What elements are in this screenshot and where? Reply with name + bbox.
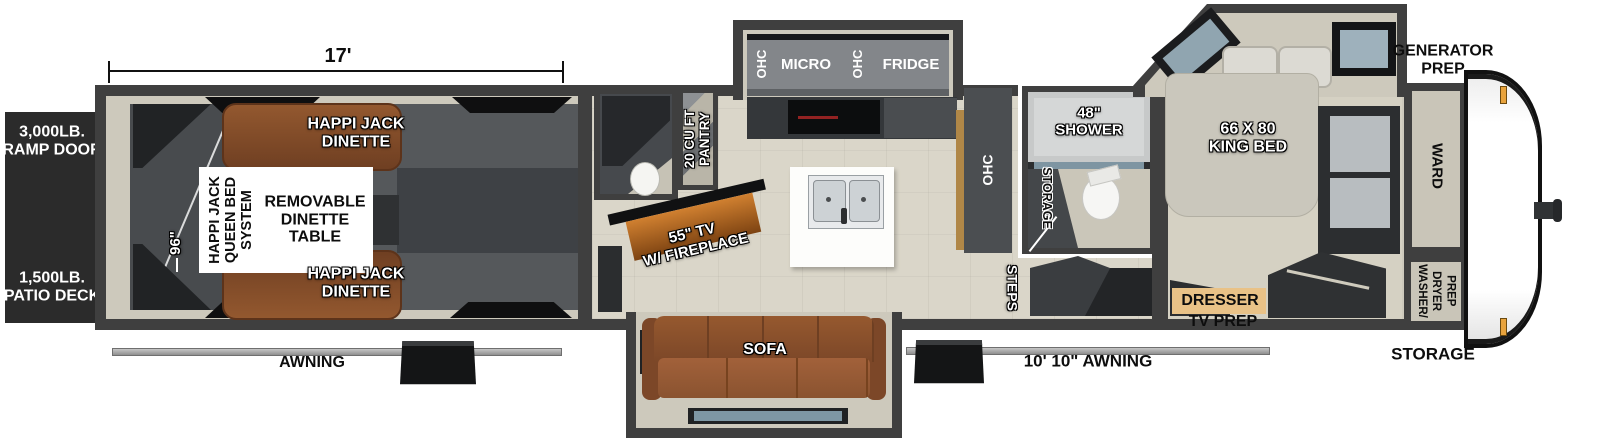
garage-length-dimension-line <box>108 70 564 72</box>
wardrobe-panel-top <box>1330 116 1390 172</box>
ohc-left-label: OHC <box>755 50 769 79</box>
sink-drain-left <box>826 197 831 202</box>
king-bed-label: 66 X 80 KING BED <box>1209 120 1287 155</box>
kitchen-ohc-wood-strip <box>956 110 964 250</box>
kitchen-ohc-label: OHC <box>980 154 995 185</box>
garage-platform-shadow <box>397 168 578 253</box>
garage-width-label: 96" <box>168 231 185 255</box>
rear-entry-step <box>400 341 476 387</box>
front-storage-label: STORAGE <box>1391 346 1475 365</box>
bedroom-window-right-glass <box>1340 30 1388 68</box>
table-connector-shadow <box>373 195 399 245</box>
sofa-seat <box>658 358 870 398</box>
faucet <box>841 208 847 224</box>
ramp-door-label: 3,000LB. RAMP DOOR <box>2 123 101 158</box>
rear-awning-label: AWNING <box>279 354 345 372</box>
rv-floorplan: 17' 3,000LB. RAMP DOOR 1,500LB. PATIO DE… <box>0 0 1600 447</box>
dinette-rear-label: HAPPI JACK DINETTE <box>308 265 405 300</box>
wheel-well-bottom-right <box>450 302 572 318</box>
steps-label: STEPS <box>1004 265 1019 311</box>
wheel-well-top-right <box>452 97 572 113</box>
queen-bed-system-label: HAPPI JACK QUEEN BED SYSTEM <box>208 176 256 264</box>
ward-label: WARD <box>1428 143 1445 189</box>
marker-light-bottom <box>1500 318 1507 336</box>
dresser-label: DRESSER <box>1181 292 1258 310</box>
main-awning-label: 10' 10" AWNING <box>1024 353 1153 372</box>
dinette-front-label: HAPPI JACK DINETTE <box>308 115 405 150</box>
garage-width-tick <box>176 258 178 272</box>
generator-prep-label: GENERATOR PREP <box>1393 42 1494 77</box>
cooktop-accent <box>798 116 838 119</box>
sofa-label: SOFA <box>743 341 787 359</box>
shower-label: 48" SHOWER <box>1055 106 1123 139</box>
sink-drain-right <box>861 197 866 202</box>
dimension-tick-left <box>108 61 110 83</box>
bathroom-storage-label: STORAGE <box>1039 167 1053 229</box>
ohc-right-label: OHC <box>851 50 865 79</box>
garage-partition-wall <box>578 85 592 330</box>
wardrobe-panel-bottom <box>1330 178 1390 228</box>
main-entry-step <box>914 340 984 386</box>
garage-length-label: 17' <box>324 45 351 67</box>
patio-deck-label: 1,500LB. PATIO DECK <box>4 269 100 304</box>
micro-label: MICRO <box>781 57 831 74</box>
pantry-label: 20 CU FT PANTRY <box>683 110 713 169</box>
kingpin-knob <box>1553 199 1562 222</box>
dimension-tick-right <box>562 61 564 83</box>
fridge-label: FRIDGE <box>883 57 940 74</box>
front-cap <box>1464 70 1542 348</box>
marker-light-top <box>1500 86 1507 104</box>
dinette-table-label: REMOVABLE DINETTE TABLE <box>264 194 365 247</box>
washer-dryer-prep-label: WASHER/ DRYER PREP <box>1414 264 1457 318</box>
sofa-slide-window-bottom-glass <box>694 411 842 421</box>
toilet-rear-bath <box>630 162 660 196</box>
kitchen-appliance-right <box>884 98 957 138</box>
tv-prep-label: TV PREP <box>1189 313 1257 331</box>
